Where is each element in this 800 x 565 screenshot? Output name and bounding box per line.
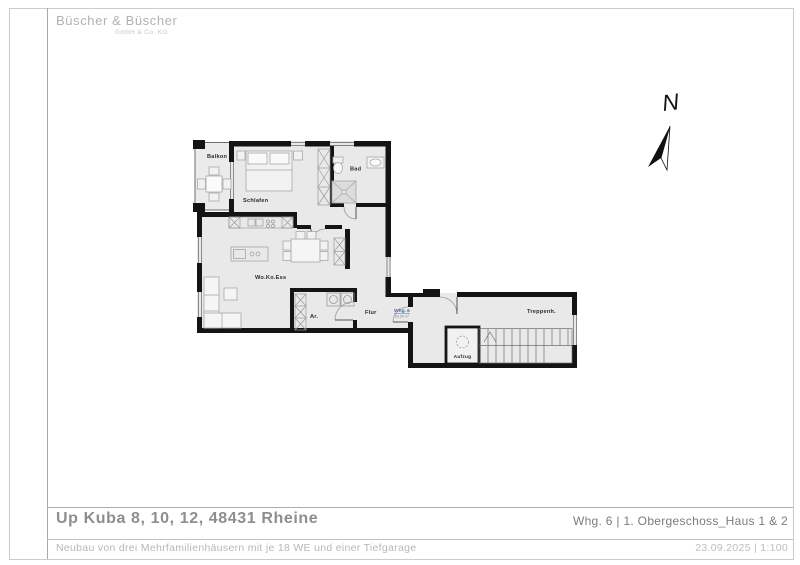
floorplan-drawing: Balkon Schlafen Bad Wo.Ko.Ess Ar. Flur T… (0, 0, 800, 565)
project-subtitle: Neubau von drei Mehrfamilienhäusern mit … (56, 542, 416, 554)
sheet-title: Whg. 6 | 1. Obergeschoss_Haus 1 & 2 (573, 514, 788, 528)
toilet-icon (333, 157, 343, 174)
room-label-schlafen: Schlafen (243, 198, 269, 204)
titleblock-mid-rule (47, 539, 793, 540)
north-label: N (661, 88, 681, 116)
room-label-balkon: Balkon (207, 154, 227, 160)
sink-icon (367, 157, 384, 168)
room-label-flur: Flur (365, 310, 377, 316)
room-label-ar: Ar. (310, 314, 318, 320)
nightstand-icon (237, 151, 245, 160)
project-title: Up Kuba 8, 10, 12, 48431 Rheine (56, 510, 318, 528)
apartment-tag-name: Whg. 6 (394, 308, 410, 314)
room-label-treppenhaus: Treppenh. (527, 309, 556, 315)
room-label-bad: Bad (350, 167, 362, 173)
room-label-aufzug: Aufzug (454, 354, 472, 360)
shower-icon (332, 181, 356, 203)
nightstand-icon (294, 151, 303, 160)
titleblock-top-rule (47, 507, 793, 508)
plan-sheet: Büscher & Büscher GmbH & Co. KG (0, 0, 800, 565)
apartment-tag-area: 86,56 m² (395, 315, 410, 319)
north-arrow: N (648, 88, 681, 170)
room-label-wokoess: Wo.Ko.Ess (255, 275, 286, 281)
sheet-date-scale: 23.09.2025 | 1:100 (695, 542, 788, 554)
bed-icon (246, 151, 292, 191)
